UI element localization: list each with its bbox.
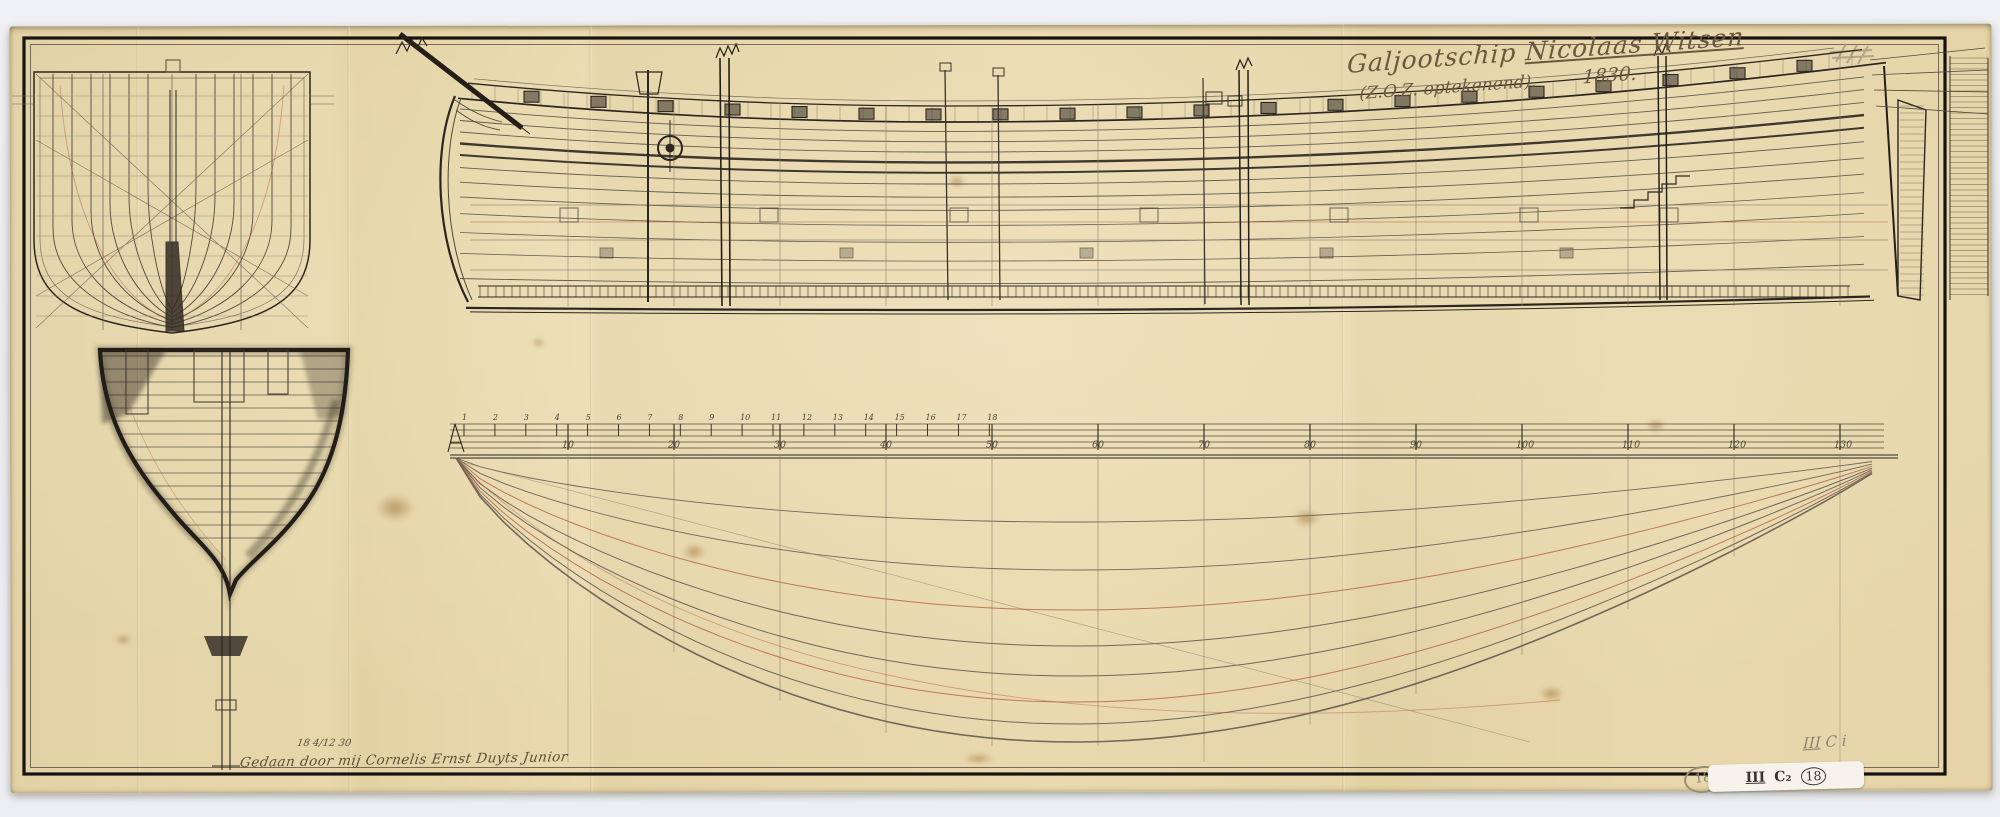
scale-number-fine: 2 xyxy=(492,413,498,422)
scale-number-fine: 6 xyxy=(617,413,622,422)
scale-number-fine: 7 xyxy=(647,413,653,422)
half-breadth-plan xyxy=(450,455,1898,762)
scale-number-fine: 3 xyxy=(524,413,529,422)
sternpost-and-rudder xyxy=(1870,48,1988,300)
stern-stairs xyxy=(1620,176,1690,208)
scale-number-fine: 4 xyxy=(554,413,560,422)
scale-number-fine: 1 xyxy=(462,413,467,422)
body-plan-bow-view xyxy=(12,60,334,333)
archive-label-number: 18 xyxy=(1800,766,1826,785)
scale-number-fine: 10 xyxy=(740,413,750,422)
sheer-plan xyxy=(396,34,1988,314)
scale-number-fine: 16 xyxy=(926,413,936,422)
scale-number-coarse: 40 xyxy=(879,440,892,451)
drawing-frame-border xyxy=(24,38,1945,774)
bowsprit xyxy=(396,34,530,134)
scan-background: 1234567891011121314151617181020304050607… xyxy=(0,0,2000,817)
scale-number-coarse: 10 xyxy=(562,440,574,451)
scale-number-coarse: 50 xyxy=(986,440,998,451)
scale-number-coarse: 30 xyxy=(774,440,786,451)
scale-number-coarse: 110 xyxy=(1622,440,1640,451)
title-year-text: 1830. xyxy=(1582,63,1637,89)
mast-stub xyxy=(716,44,739,306)
scale-number-fine: 12 xyxy=(802,413,812,422)
scale-number-fine: 13 xyxy=(833,413,843,422)
ship-draught-drawing: 1234567891011121314151617181020304050607… xyxy=(0,0,2000,817)
scale-number-fine: 8 xyxy=(678,413,683,422)
scale-number-coarse: 70 xyxy=(1198,440,1210,451)
pencil-shelfmark: III C i xyxy=(1803,731,1847,752)
scale-number-fine: 5 xyxy=(586,413,591,422)
scale-number-fine: 17 xyxy=(956,413,967,422)
scale-number-coarse: 100 xyxy=(1516,440,1534,451)
scale-number-fine: 9 xyxy=(709,413,714,422)
scale-number-coarse: 120 xyxy=(1728,440,1746,451)
scale-number-fine: 18 xyxy=(987,413,997,422)
scale-bar: 1234567891011121314151617181020304050607… xyxy=(448,413,1884,452)
scale-number-coarse: 130 xyxy=(1834,440,1852,451)
scale-number-fine: 14 xyxy=(864,413,874,422)
scale-number-coarse: 80 xyxy=(1304,440,1316,451)
signature-date: 18 4/12 30 xyxy=(296,738,352,749)
body-plan-stern-view xyxy=(96,350,352,770)
scale-number-fine: 15 xyxy=(895,413,905,422)
scale-number-coarse: 60 xyxy=(1092,440,1104,451)
scale-number-fine: 11 xyxy=(771,413,781,422)
scale-number-coarse: 90 xyxy=(1410,440,1422,451)
archive-label: III C₂ 18 xyxy=(1708,761,1865,792)
deck-posts xyxy=(940,63,1004,300)
scale-number-coarse: 20 xyxy=(667,440,680,451)
